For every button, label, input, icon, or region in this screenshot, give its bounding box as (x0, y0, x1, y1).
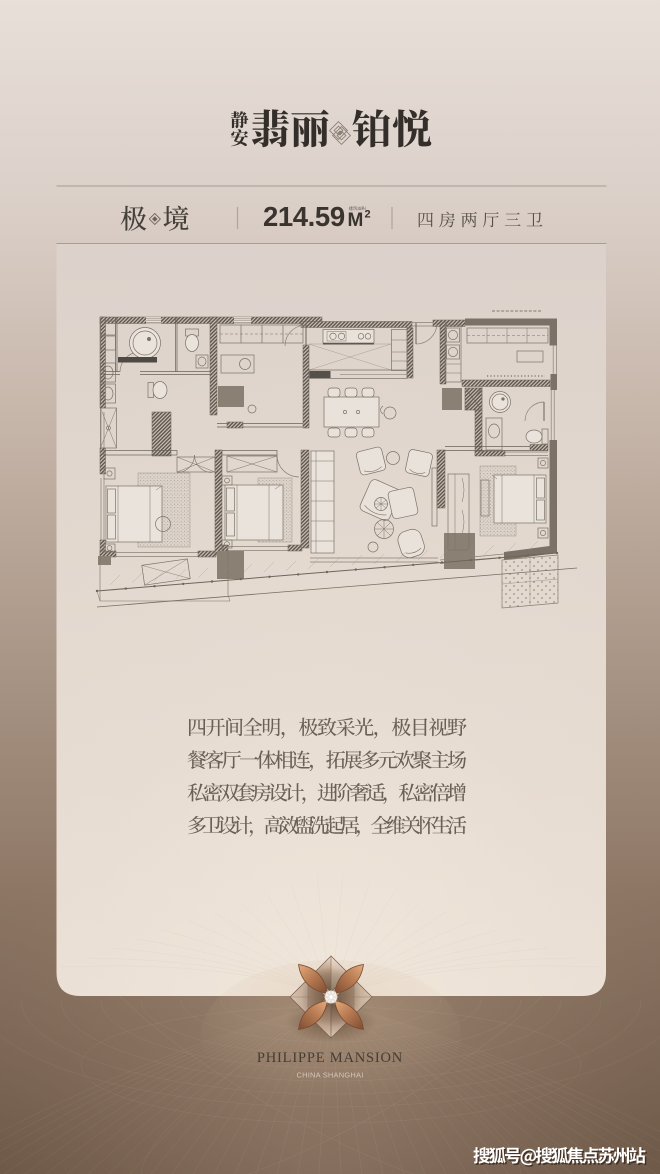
svg-text:2: 2 (365, 209, 371, 221)
svg-text:M: M (348, 210, 364, 231)
svg-text:CHINA SHANGHAI: CHINA SHANGHAI (297, 1071, 364, 1080)
svg-text:214.59: 214.59 (263, 201, 345, 232)
svg-text:PHILIPPE MANSION: PHILIPPE MANSION (257, 1050, 403, 1066)
